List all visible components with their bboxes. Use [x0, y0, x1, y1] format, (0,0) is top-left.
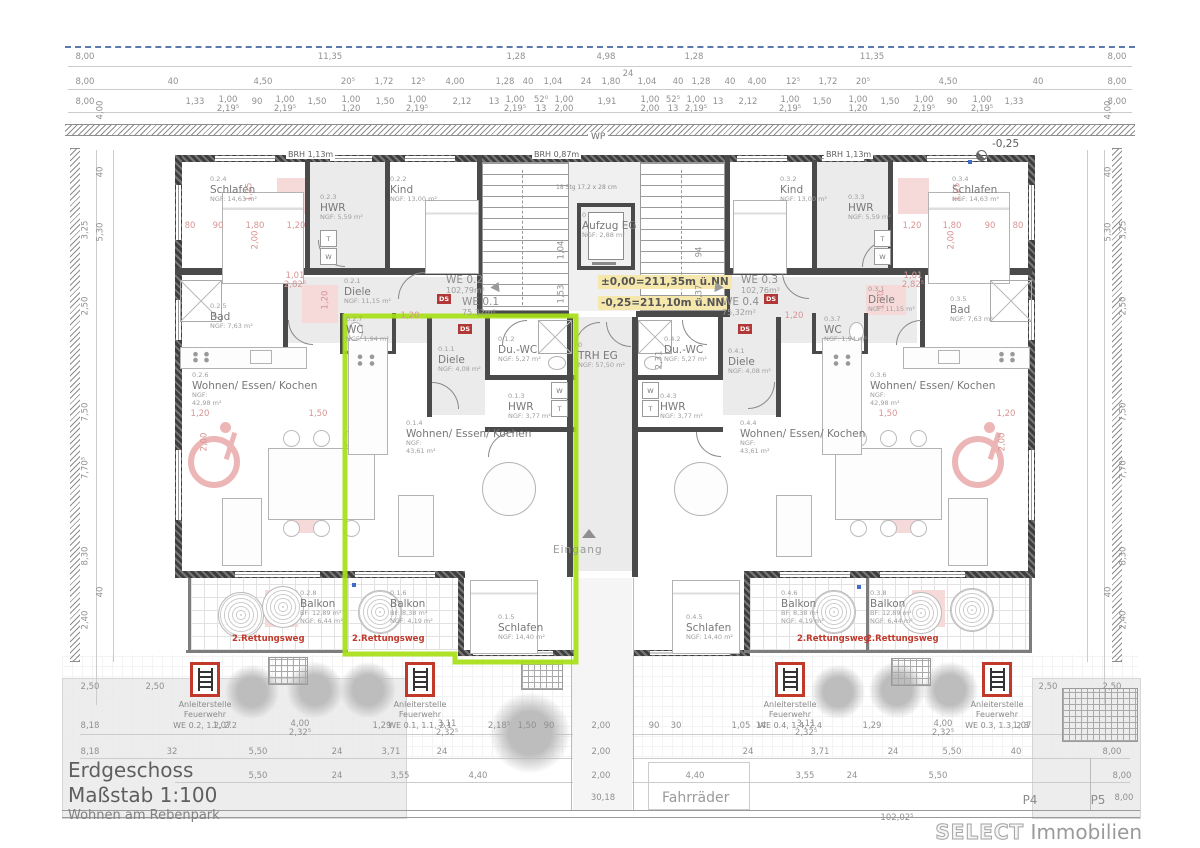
dimension-label: 2,12 [453, 98, 472, 107]
sofa [776, 495, 812, 557]
brh-label: BRH 1,13m [286, 150, 335, 159]
dimension-label: 13 [713, 98, 724, 107]
dimension-line [68, 66, 1132, 67]
dimension-label: 3,55 [796, 772, 815, 781]
unit-highlight-outline [338, 308, 582, 668]
ds-marker: DS [764, 294, 778, 304]
fire-ladder-station: AnleiterstelleFeuerwehrWE 0.2, 1.2, 2.2 [150, 662, 260, 731]
wall [718, 317, 723, 379]
window [880, 572, 965, 577]
dimension-label: 8,00 [1108, 53, 1127, 62]
window [176, 450, 181, 520]
dimension-label: 4,00 [748, 78, 767, 87]
chair [880, 520, 897, 537]
bed [928, 192, 1010, 284]
fire-ladder-station: AnleiterstelleFeuerwehrWE 0.1, 1.1, 2.1 [365, 662, 475, 731]
dimension-label: 90 [252, 98, 263, 107]
balcony-rail [1029, 578, 1032, 652]
dimension-line [113, 150, 114, 662]
dimension-label: 1,33 [186, 98, 205, 107]
elevator [577, 203, 581, 270]
dimension-label: 1,28 [496, 78, 515, 87]
elevator-door [592, 262, 616, 265]
wp-label: WP [588, 132, 608, 142]
wheelchair-head [984, 422, 995, 433]
balcony-plant [218, 592, 264, 638]
entrance-label: Eingang [553, 544, 603, 556]
dimension-label: 1,50 [376, 98, 395, 107]
dimension-label: 1,33 [1005, 98, 1024, 107]
dimension-label: 5,50 [929, 772, 948, 781]
survey-dot [352, 583, 356, 587]
dimension-label: 40 [673, 78, 684, 87]
shower [990, 280, 1032, 322]
wall [744, 571, 750, 656]
fire-ladder-icon [982, 662, 1012, 697]
dining-table [835, 448, 942, 520]
bike-area-label: Fahrräder [662, 790, 729, 806]
washer-box: W [320, 248, 337, 265]
dimension-label: 1,20 [903, 222, 922, 231]
dimension-label: 4,00 [446, 78, 465, 87]
window [1029, 450, 1034, 520]
shaft [898, 178, 929, 214]
room-label: 0.3.6Wohnen/ Essen/ KochenNGF:42,98 m² [870, 372, 995, 408]
bed [733, 200, 787, 274]
chair [880, 430, 897, 447]
dimension-label: 1,28 [507, 53, 526, 62]
sink [938, 350, 960, 364]
fire-ladder-station: AnleiterstelleFeuerwehrWE 0.3, 1.3, 2.3 [942, 662, 1052, 731]
dimension-label: 8,00 [76, 53, 95, 62]
project-name: Wohnen am Rebenpark [68, 808, 220, 824]
brand-watermark: SELECT Immobilien [935, 820, 1142, 844]
dimension-label: 40 [97, 167, 106, 178]
shaft [302, 285, 338, 323]
door-swing [696, 432, 721, 457]
dimension-label: 4,50 [939, 78, 958, 87]
brh-label: BRH 1,13m [824, 150, 873, 159]
wall [632, 317, 638, 577]
escape-route-label: 2.Rettungsweg [797, 634, 870, 644]
wall [812, 313, 816, 353]
stove-icon [830, 352, 854, 368]
elevator [631, 203, 635, 270]
entrance-arrow [582, 529, 596, 538]
balcony-plant [812, 590, 856, 634]
dimension-label: 12⁵ [411, 78, 425, 87]
dimension-label: 8,00 [1108, 98, 1127, 107]
wall [725, 155, 730, 317]
parking-divider [1090, 758, 1091, 810]
survey-dot [857, 585, 861, 589]
dimension-label: 24 [581, 78, 592, 87]
sink [250, 350, 272, 364]
wheelchair-head [220, 422, 231, 433]
dimension-label: 1,72 [375, 78, 394, 87]
brand-select: SELECT [935, 820, 1024, 844]
dimension-label: 7,70⁵ [82, 457, 91, 479]
wheelchair-symbol [188, 422, 242, 484]
dimension-label: 4,00 [1105, 101, 1114, 120]
room-label: 0.3.5BadNGF: 7,63 m² [950, 296, 993, 324]
balcony-rail [862, 650, 1032, 653]
sofa [948, 498, 988, 566]
dimension-label: 4,50 [254, 78, 273, 87]
dimension-line [1104, 150, 1105, 705]
property-line [65, 46, 1135, 48]
room-label: 0.4.3HWRNGF: 3,77 m² [660, 393, 703, 421]
wall [636, 311, 727, 317]
dimension-label: 40 [168, 78, 179, 87]
dimension-label: 1,28 [685, 53, 704, 62]
dimension-label: 4,00 [97, 101, 106, 120]
wall [776, 317, 781, 417]
sofa [222, 498, 262, 566]
window [235, 572, 320, 577]
dimension-label: 8,00 [76, 98, 95, 107]
wall [812, 160, 817, 268]
dimension-label: 80 [185, 222, 196, 231]
window [405, 156, 455, 161]
balcony-rail [188, 578, 191, 652]
dimension-label: 1,20 [997, 410, 1016, 419]
window [737, 156, 787, 161]
level-marker-icon [976, 150, 987, 161]
ds-marker: DS [458, 324, 472, 334]
dimension-label: 1,50 [813, 98, 832, 107]
stove-icon [190, 350, 212, 364]
shower [638, 320, 672, 354]
toilet [849, 322, 864, 341]
window [780, 572, 850, 577]
dimension-label: 2,40 [82, 611, 91, 630]
dimension-label: 1,91 [598, 98, 617, 107]
fire-ladder-icon [405, 662, 435, 697]
title-block: Erdgeschoss Maßstab 1:100 Wohnen am Rebe… [68, 758, 220, 824]
dryer-box: T [874, 230, 891, 247]
dimension-line [68, 89, 1132, 90]
dimension-label: 1,28 [692, 78, 711, 87]
window [330, 156, 372, 161]
dimension-label: 13 [489, 98, 500, 107]
window [215, 156, 275, 161]
washer-box: W [874, 248, 891, 265]
dimension-label: 12⁵ [786, 78, 800, 87]
stove-icon [996, 350, 1018, 364]
wall [632, 375, 723, 380]
dryer-box: T [320, 230, 337, 247]
escape-route-label: 2.Rettungsweg [232, 634, 305, 644]
washer-box: W [642, 382, 659, 399]
dimension-label: 7,50 [82, 403, 91, 422]
balcony-rail [186, 650, 348, 653]
wall [305, 160, 310, 268]
dimension-label: 20⁵ [341, 78, 355, 87]
dimension-label: 4,98 [597, 53, 616, 62]
level-marker-label: -0,25 [992, 138, 1019, 150]
bike-rack [891, 658, 931, 686]
elevator [577, 266, 635, 270]
dimension-label: 3,25 [82, 221, 91, 240]
fire-ladder-icon [775, 662, 805, 697]
balcony-plant [900, 592, 942, 634]
chair [283, 520, 300, 537]
elevator-cab [588, 212, 624, 260]
escape-route-label: 2.Rettungsweg [866, 634, 939, 644]
elevation-note: -0,25=211,10m ü.NN [598, 296, 727, 310]
site-boundary [62, 817, 1140, 818]
dimension-line [1087, 150, 1088, 662]
wheelchair-symbol [952, 422, 1006, 484]
balcony-plant [262, 586, 304, 628]
ds-marker: DS [738, 324, 752, 334]
dimension-label: 24 [623, 70, 634, 79]
dimension-label: 1,04 [638, 78, 657, 87]
dimension-label: 40 [523, 78, 534, 87]
dimension-label: 1,50 [881, 98, 900, 107]
wall [864, 313, 868, 353]
balcony-rail [744, 650, 868, 653]
dimension-label: 11,35 [860, 53, 884, 62]
escape-route-label: 2.Rettungsweg [352, 634, 425, 644]
ds-marker: DS [437, 294, 451, 304]
floor-plan-canvas: T W T W W T W T BRH 1,13m BRH 0,87m BRH … [0, 0, 1200, 848]
dimension-label: 80 [1013, 222, 1024, 231]
dimension-line [96, 150, 97, 705]
bed [672, 580, 740, 654]
round-table [674, 462, 728, 516]
balcony-plant [950, 588, 994, 632]
dimension-label: 1,72 [819, 78, 838, 87]
chair [850, 520, 867, 537]
dimension-label: 8,00 [1108, 78, 1127, 87]
site-boundary [62, 810, 1140, 811]
stair-note: 18 Stg 17,2 x 28 cm [556, 184, 617, 191]
dimension-line [68, 112, 1132, 113]
dimension-label: 5,30 [97, 223, 106, 242]
fire-ladder-icon [190, 662, 220, 697]
chair [313, 520, 330, 537]
site-hatch-right [1112, 148, 1122, 662]
dimension-label: 8,30 [82, 547, 91, 566]
dimension-label: 1,50 [879, 410, 898, 419]
wall [385, 160, 390, 268]
stair-walkline [522, 170, 523, 305]
bed [222, 192, 304, 284]
dimension-label: 4,40 [469, 772, 488, 781]
chair [910, 430, 927, 447]
dryer-box: T [642, 400, 659, 417]
site-hatch-left [70, 148, 80, 662]
dimension-label: 40 [725, 78, 736, 87]
sheet-title: Erdgeschoss [68, 758, 220, 783]
dimension-label: 20⁵ [856, 78, 870, 87]
chair [910, 520, 927, 537]
elevator [577, 203, 635, 207]
dimension-label: 24 [847, 772, 858, 781]
toilet [644, 356, 662, 370]
window [1029, 185, 1034, 240]
window [176, 185, 181, 240]
fire-ladder-station: AnleiterstelleFeuerwehrWE 0.4, 1.4, 2.4 [735, 662, 845, 731]
dimension-label: 8,00 [76, 78, 95, 87]
survey-dot [968, 160, 972, 164]
bed [425, 200, 479, 274]
bike-rack [268, 657, 308, 685]
dimension-label: 2,12 [739, 98, 758, 107]
shower [180, 280, 222, 322]
chair [313, 430, 330, 447]
parking-rack [1062, 688, 1138, 742]
tree [490, 693, 570, 773]
brh-label: BRH 0,87m [532, 150, 581, 159]
dimension-label: 40 [97, 587, 106, 598]
dimension-label: 2,50 [82, 297, 91, 316]
dimension-label: 1,50 [309, 410, 328, 419]
room-label: 0.2.6Wohnen/ Essen/ KochenNGF:42,98 m² [192, 372, 317, 408]
dimension-label: 1,50 [308, 98, 327, 107]
dimension-label: 11,35 [318, 53, 342, 62]
sheet-scale: Maßstab 1:100 [68, 783, 220, 808]
dimension-label: 1,04 [544, 78, 563, 87]
dimension-label: 90 [947, 98, 958, 107]
brand-immobilien: Immobilien [1031, 820, 1142, 844]
shaft [866, 285, 906, 315]
dimension-label: 1,20 [191, 410, 210, 419]
chair [283, 430, 300, 447]
door-swing [682, 320, 707, 345]
dimension-label: 40 [1033, 78, 1044, 87]
path-edge [633, 578, 634, 810]
dimension-label: 1,80 [602, 78, 621, 87]
dimension-label: 102,02⁵ [880, 814, 913, 823]
